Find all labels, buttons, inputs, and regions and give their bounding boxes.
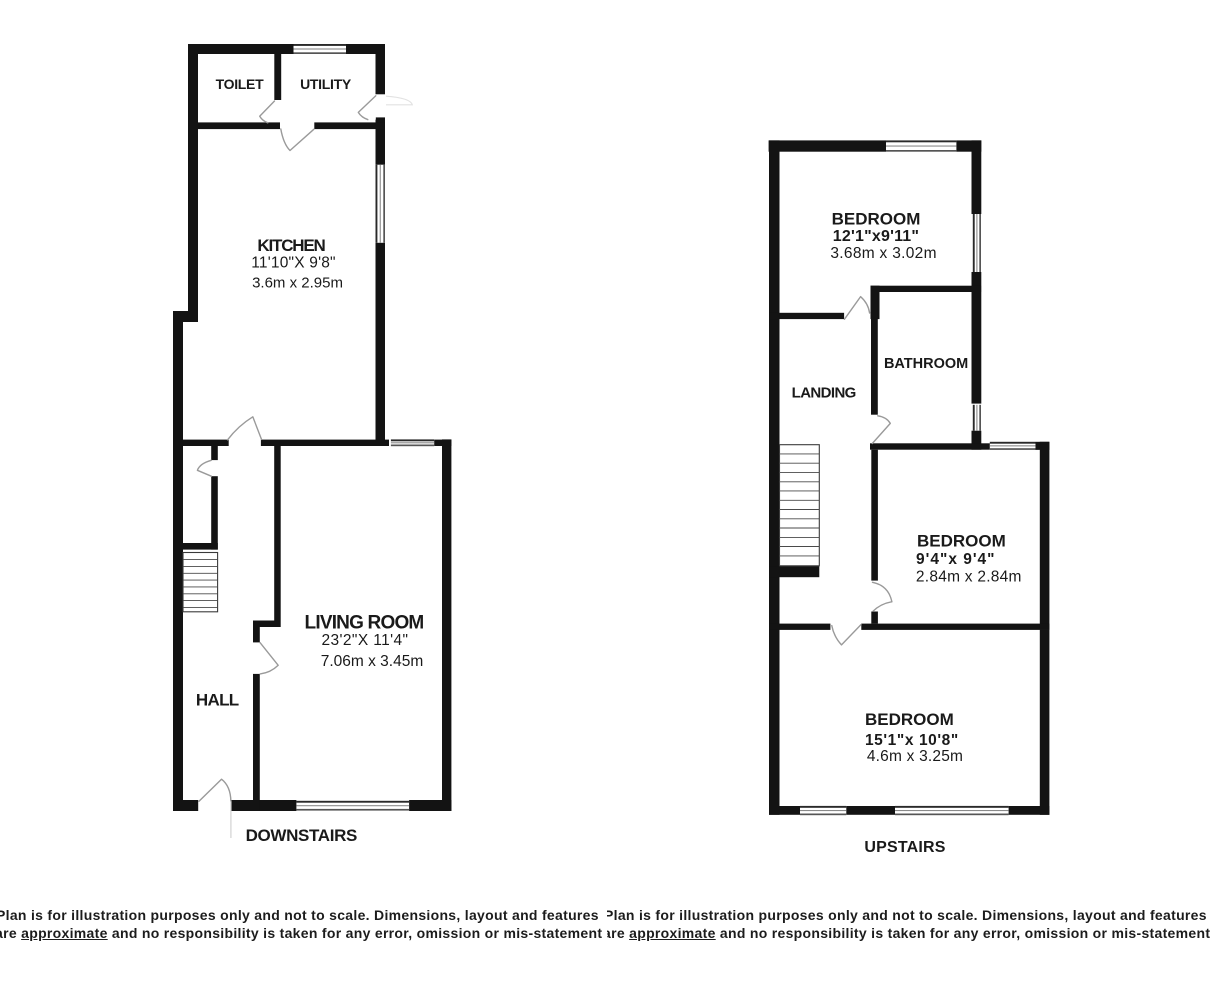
svg-text:HALL: HALL — [196, 691, 239, 710]
svg-text:7.06m x 3.45m: 7.06m x 3.45m — [321, 653, 424, 670]
svg-text:UTILITY: UTILITY — [300, 76, 352, 92]
svg-text:TOILET: TOILET — [216, 76, 264, 92]
svg-text:3.6m x 2.95m: 3.6m x 2.95m — [252, 275, 343, 292]
svg-text:23'2"X 11'4": 23'2"X 11'4" — [322, 632, 409, 649]
svg-text:KITCHEN: KITCHEN — [257, 236, 325, 255]
svg-text:LIVING ROOM: LIVING ROOM — [305, 613, 424, 634]
svg-text:11'10"X 9'8": 11'10"X 9'8" — [251, 255, 336, 272]
svg-text:DOWNSTAIRS: DOWNSTAIRS — [246, 826, 357, 845]
